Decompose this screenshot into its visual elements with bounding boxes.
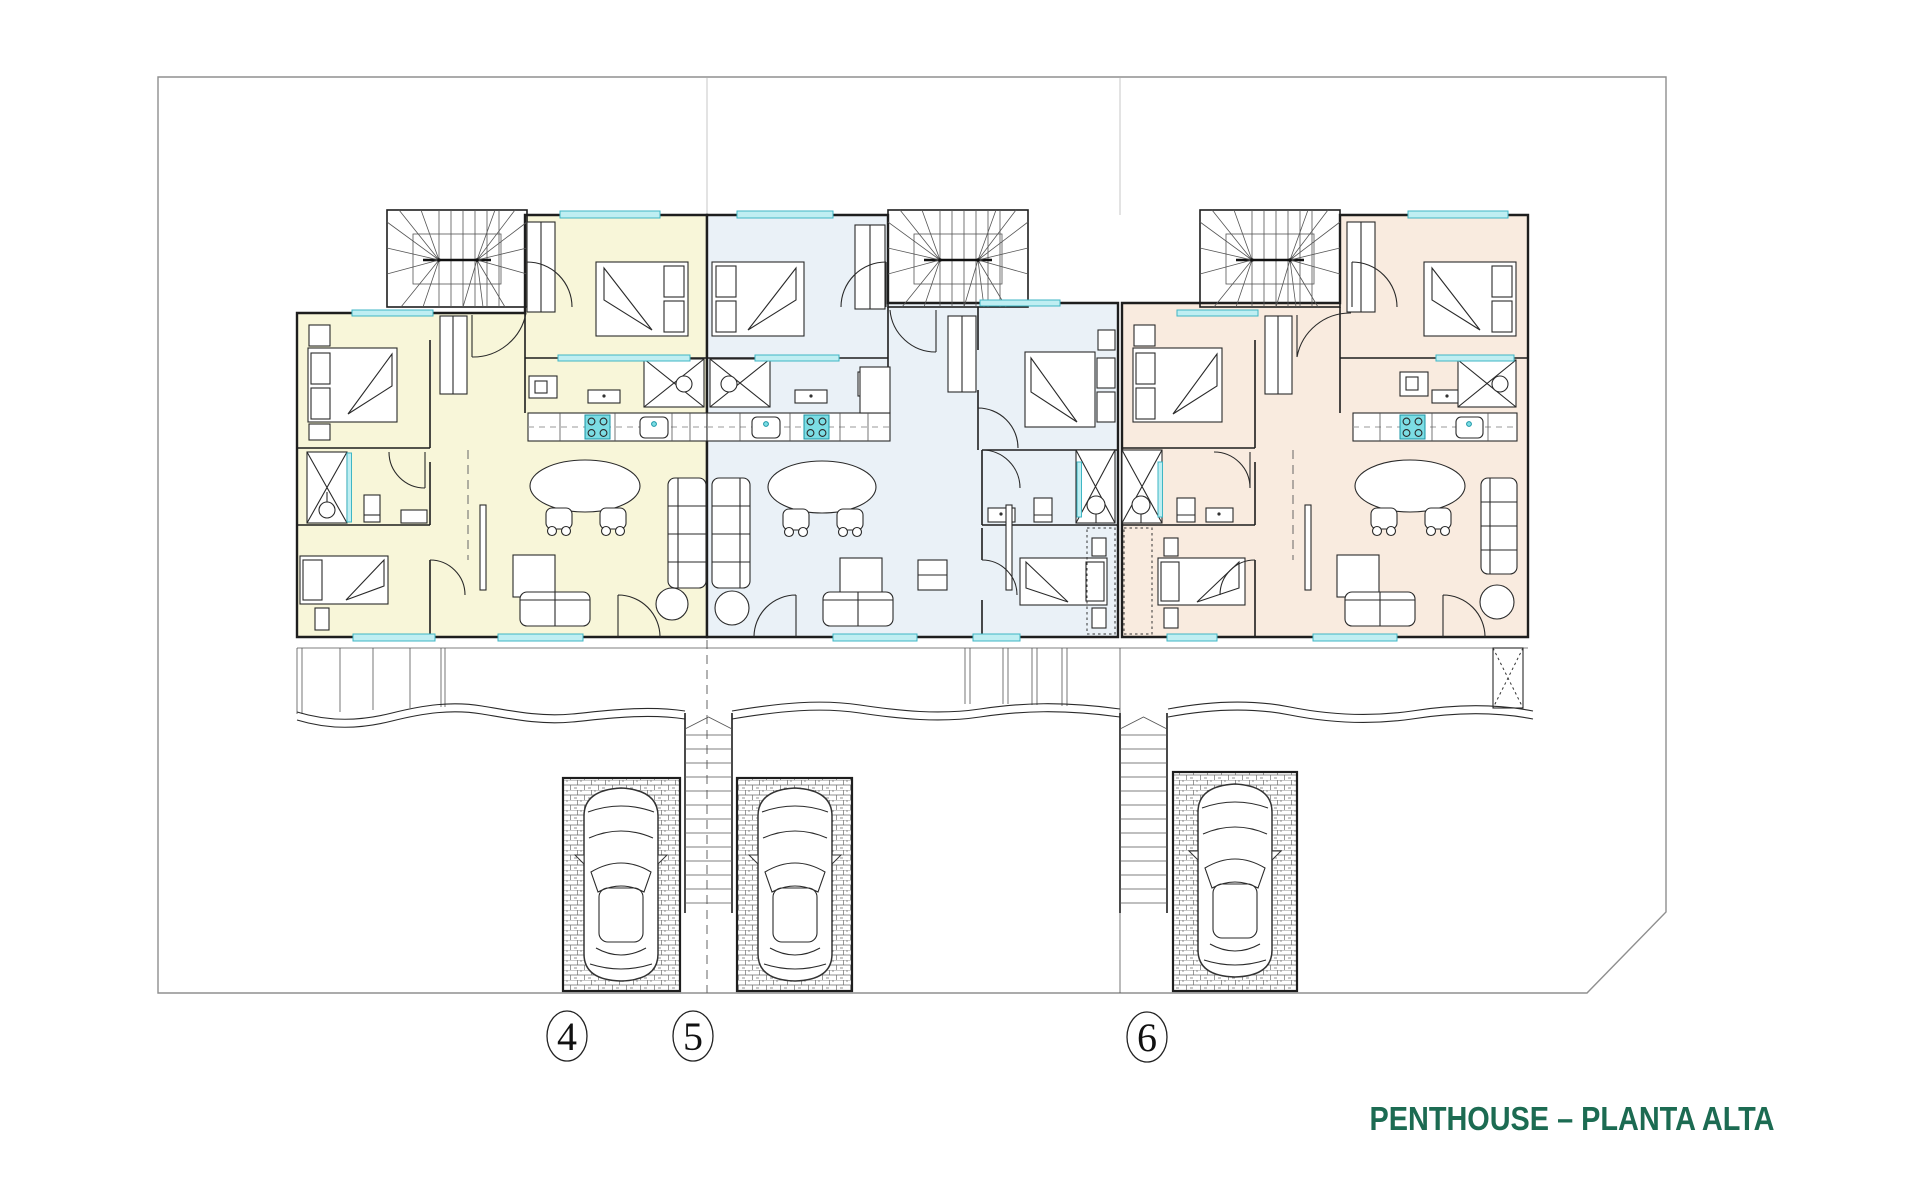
stairwell-unit-5 — [888, 210, 1028, 307]
kitchen-counter — [528, 413, 707, 441]
coffee-table-icon — [1337, 555, 1379, 597]
sofa-icon — [1481, 478, 1517, 574]
side-table-icon — [1480, 585, 1514, 619]
shower-icon — [1458, 360, 1516, 407]
stairwell-unit-4 — [387, 210, 527, 307]
unit-6-number: 6 — [1137, 1015, 1157, 1060]
kitchen-sink-icon — [640, 417, 668, 438]
bed-icon — [596, 262, 688, 336]
toilet-icon — [1177, 498, 1195, 522]
external-stair-1 — [685, 713, 732, 913]
shower-icon — [307, 452, 347, 523]
toilet-icon — [364, 495, 380, 522]
braced-pillar — [1493, 648, 1523, 708]
armchair-icon — [715, 591, 749, 625]
loveseat-icon — [1345, 592, 1415, 626]
coffee-table-icon — [513, 555, 555, 597]
kitchen-hob-icon — [1400, 415, 1425, 439]
unit-6-badge: 6 — [1127, 1012, 1167, 1062]
loveseat-icon — [520, 592, 590, 626]
unit-5-number: 5 — [683, 1014, 703, 1059]
kitchen-counter — [1353, 413, 1517, 441]
parking-space-4 — [563, 778, 680, 991]
side-table-icon — [656, 588, 688, 620]
sofa-icon — [712, 478, 750, 588]
bed-icon — [1424, 262, 1516, 336]
toilet-icon — [1034, 498, 1052, 522]
parking-space-6 — [1173, 772, 1297, 991]
external-stair-2 — [1120, 713, 1167, 913]
page-title: PENTHOUSE – PLANTA ALTA — [1370, 1100, 1775, 1137]
shower-icon — [710, 359, 770, 407]
loveseat-icon — [823, 592, 893, 626]
shower-icon — [1122, 450, 1162, 523]
balcony-terrace — [297, 648, 1533, 727]
parking-space-5 — [737, 778, 852, 991]
unit-4-badge: 4 — [547, 1011, 587, 1061]
bed-icon — [712, 262, 804, 336]
unit-5-badge: 5 — [673, 1011, 713, 1061]
kitchen-sink-icon — [1456, 417, 1483, 438]
kitchen-sink-icon — [752, 417, 780, 438]
shower-icon — [644, 359, 704, 407]
kitchen-hob-icon — [585, 415, 610, 439]
floor-plan-drawing: 4 5 6 PENTHOUSE – PLANTA ALTA — [0, 0, 1920, 1197]
kitchen-hob-icon — [804, 415, 829, 439]
sofa-icon — [668, 478, 706, 588]
unit-4-number: 4 — [557, 1014, 577, 1059]
stairwell-unit-6 — [1200, 210, 1340, 307]
sink-icon — [401, 510, 427, 523]
floor-plan-canvas: 4 5 6 PENTHOUSE – PLANTA ALTA — [0, 0, 1920, 1197]
